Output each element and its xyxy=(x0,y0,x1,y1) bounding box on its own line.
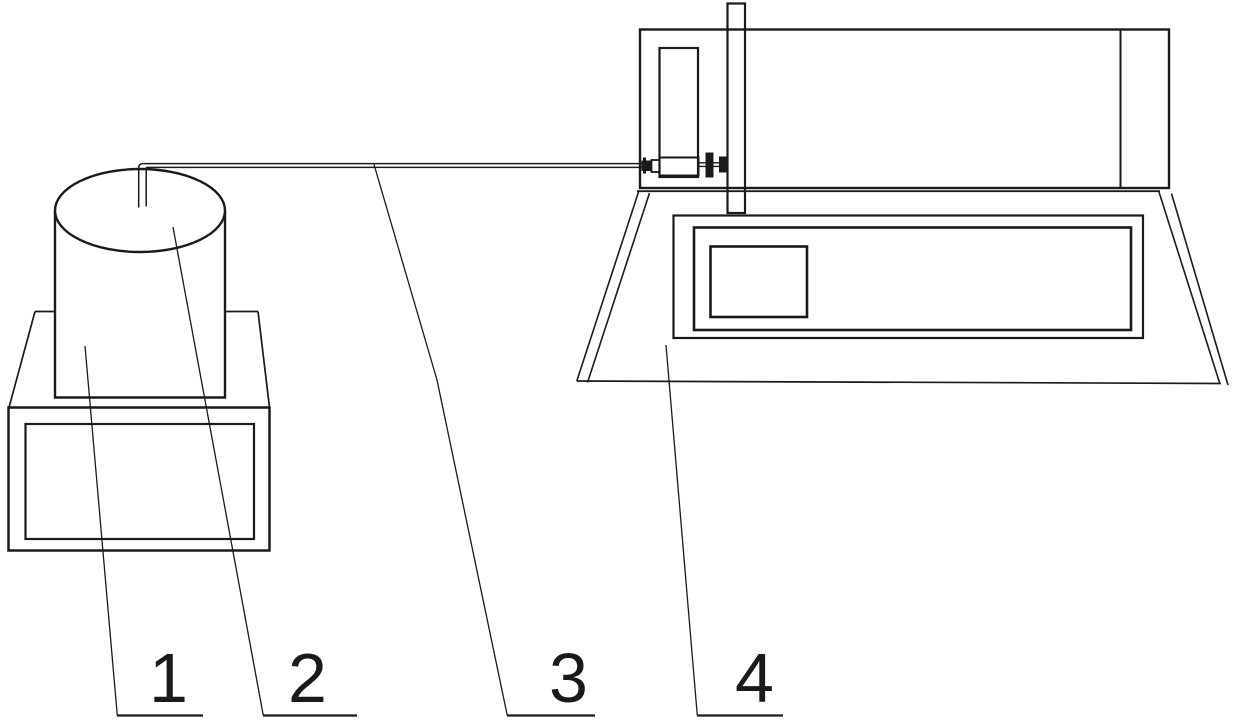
base-top-face-edges xyxy=(9,312,270,408)
callout-1-leader-line xyxy=(85,346,117,716)
patent-figure-canvas: 1 2 3 4 xyxy=(0,0,1240,721)
rod-end-cap xyxy=(719,157,727,173)
platform-left-slant-outer xyxy=(577,192,639,381)
vessel-assembly xyxy=(9,164,270,551)
platform-display-panel xyxy=(674,216,1144,339)
display-screen xyxy=(711,247,808,318)
analyzer-assembly xyxy=(577,4,1228,386)
syringe-tip xyxy=(652,160,660,172)
display-panel-outer xyxy=(674,216,1144,339)
vertical-slide-bar xyxy=(728,4,746,214)
callout-1-number: 1 xyxy=(149,639,188,717)
callout-4-number: 4 xyxy=(735,639,774,717)
injector-mechanism xyxy=(642,153,727,178)
callout-2-number: 2 xyxy=(288,639,327,717)
platform-left-slant-inner xyxy=(588,193,650,383)
transfer-tube xyxy=(143,164,641,168)
platform-right-slant-inner xyxy=(1172,194,1229,386)
technical-line-diagram: 1 2 3 4 xyxy=(0,0,1240,721)
callout-3-leader-line xyxy=(374,165,507,716)
callouts: 1 2 3 4 xyxy=(85,165,783,718)
base-front-outer xyxy=(9,408,270,551)
platform-bottom-edge xyxy=(577,381,1221,384)
platform-right-slant-outer xyxy=(1159,192,1220,383)
plunger-flange xyxy=(706,153,714,178)
cylinder-top-ellipse xyxy=(55,169,225,252)
callout-3-number: 3 xyxy=(549,639,588,717)
syringe-barrel xyxy=(660,158,699,176)
callout-4-leader-line xyxy=(666,345,697,716)
display-panel-inner xyxy=(694,228,1131,331)
tube-coupler-tick xyxy=(643,158,646,174)
